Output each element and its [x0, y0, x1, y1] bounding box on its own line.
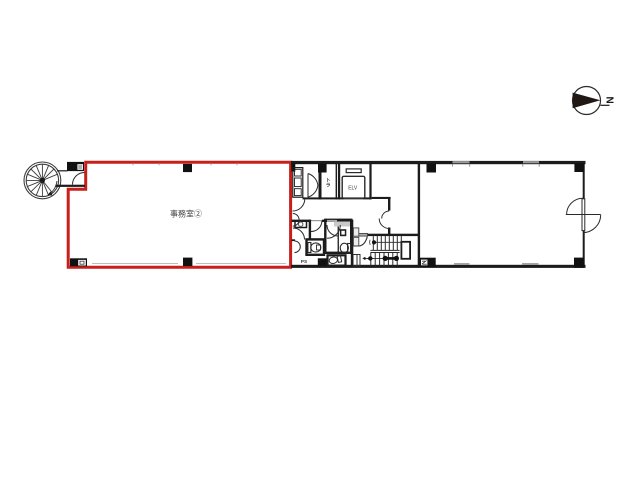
svg-text:ELV: ELV [348, 185, 358, 191]
svg-text:ラ: ラ [326, 183, 331, 189]
svg-text:N: N [604, 97, 615, 104]
svg-text:事務室②: 事務室② [170, 209, 202, 219]
svg-text:PS: PS [301, 259, 308, 265]
